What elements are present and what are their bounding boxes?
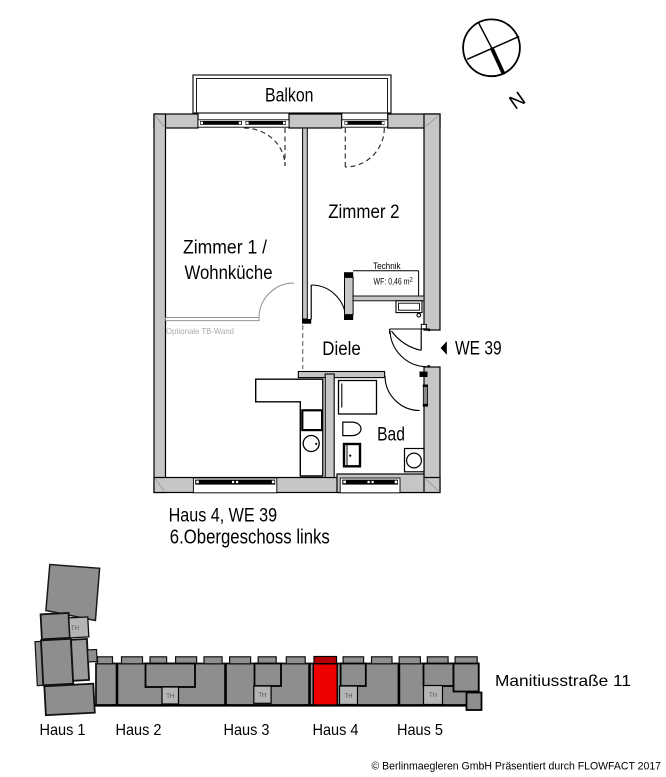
svg-text:TH: TH bbox=[166, 694, 174, 700]
svg-text:Bad: Bad bbox=[377, 425, 405, 446]
svg-text:TH: TH bbox=[71, 626, 79, 632]
svg-text:Manitiusstraße 11: Manitiusstraße 11 bbox=[495, 673, 631, 690]
svg-text:TH: TH bbox=[345, 694, 353, 700]
svg-text:Zimmer 2: Zimmer 2 bbox=[328, 202, 399, 223]
svg-text:Optionale TB-Wand: Optionale TB-Wand bbox=[166, 326, 234, 336]
svg-text:Haus 4: Haus 4 bbox=[313, 722, 359, 739]
svg-text:Haus 2: Haus 2 bbox=[116, 722, 162, 739]
svg-text:Zimmer 1 /: Zimmer 1 / bbox=[183, 238, 268, 259]
svg-text:WE 39: WE 39 bbox=[455, 338, 502, 359]
svg-text:Balkon: Balkon bbox=[265, 86, 314, 107]
svg-text:Diele: Diele bbox=[322, 339, 361, 360]
svg-text:© Berlinmaegleren GmbH Präsent: © Berlinmaegleren GmbH Präsentiert durch… bbox=[372, 761, 662, 773]
svg-text:Wohnküche: Wohnküche bbox=[185, 263, 273, 284]
svg-text:TH: TH bbox=[258, 693, 266, 699]
svg-text:Haus 5: Haus 5 bbox=[397, 722, 443, 739]
svg-text:Haus 1: Haus 1 bbox=[40, 722, 86, 739]
svg-text:Haus 3: Haus 3 bbox=[224, 722, 270, 739]
svg-text:6.Obergeschoss links: 6.Obergeschoss links bbox=[170, 527, 330, 549]
svg-text:WF: 0,46 m2: WF: 0,46 m2 bbox=[374, 277, 414, 287]
svg-text:Haus 4, WE 39: Haus 4, WE 39 bbox=[169, 506, 278, 527]
svg-text:TH: TH bbox=[429, 693, 437, 699]
svg-text:Technik: Technik bbox=[373, 261, 401, 271]
